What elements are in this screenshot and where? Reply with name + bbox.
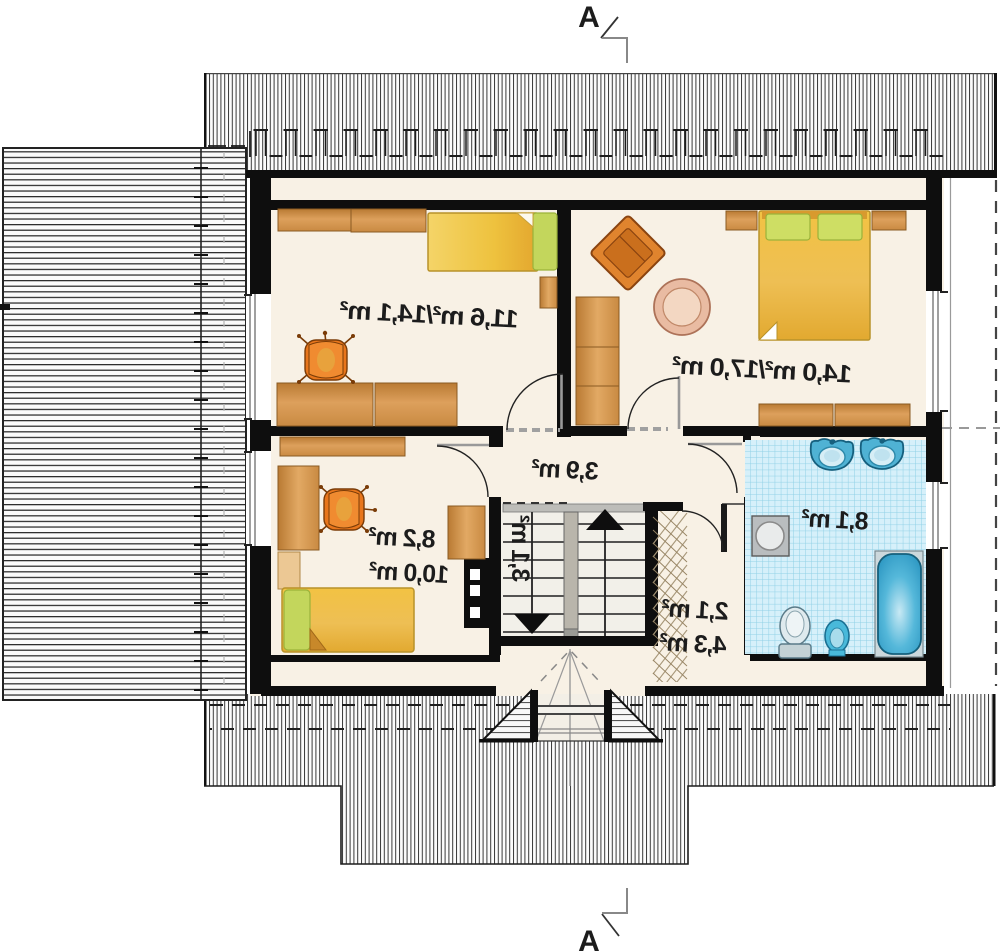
svg-text:4,3 m²: 4,3 m² [659,628,727,659]
svg-text:2,1 m²: 2,1 m² [661,594,729,625]
svg-text:10,0 m²: 10,0 m² [368,557,449,589]
svg-text:3,9 m²: 3,9 m² [531,454,599,485]
svg-text:A: A [578,1,600,34]
svg-text:3,1 m²: 3,1 m² [506,515,534,582]
svg-text:8,1 m²: 8,1 m² [801,504,869,535]
svg-text:8,2 m²: 8,2 m² [368,522,436,553]
svg-text:A: A [578,925,600,952]
